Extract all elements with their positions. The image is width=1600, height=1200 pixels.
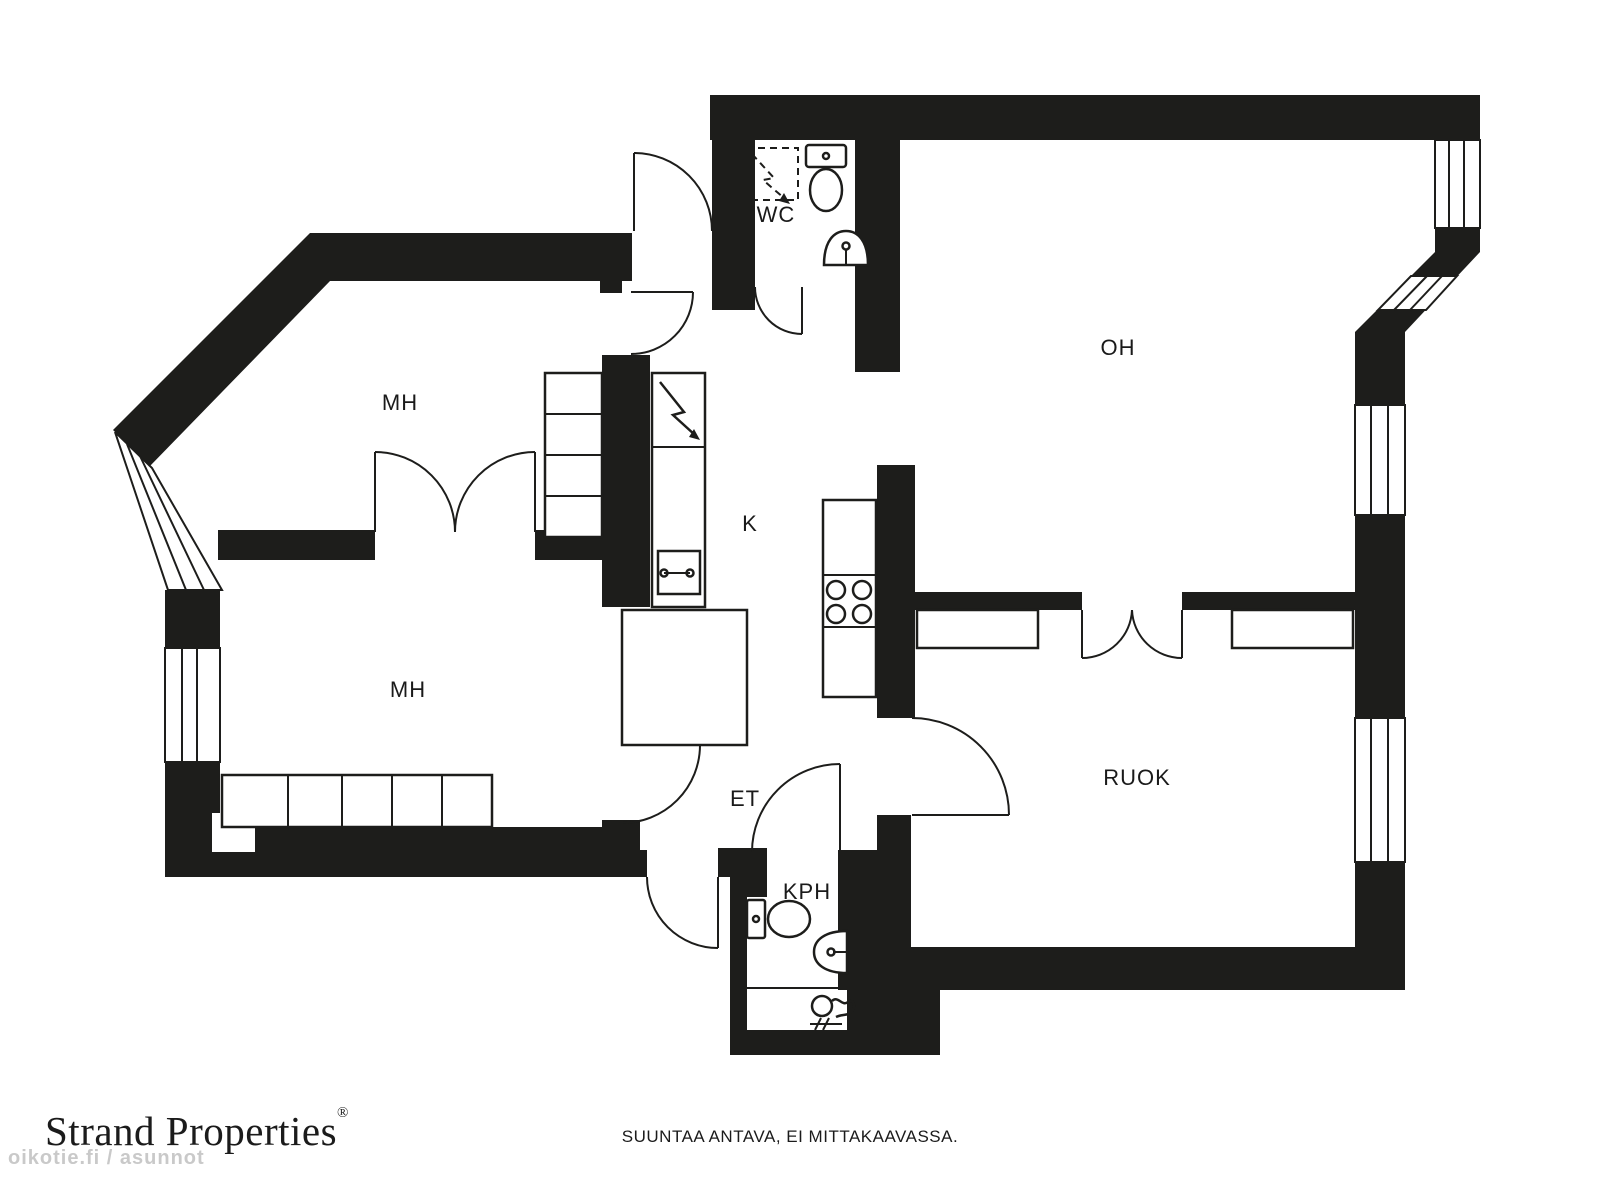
bathroom-toilet-icon: [747, 900, 810, 938]
stove-icon: [823, 500, 876, 697]
dining-room-door-arc: [912, 718, 1009, 815]
window-left: [165, 648, 220, 762]
bedroom-to-hallway-door-arc: [622, 745, 700, 823]
room-label-k: K: [742, 511, 758, 536]
window-right-top: [1435, 140, 1480, 228]
room-label-mh-lower: MH: [390, 677, 426, 702]
room-label-et: ET: [730, 786, 760, 811]
bedroom-double-door-arcs: [375, 452, 535, 532]
room-label-ruok: RUOK: [1103, 765, 1171, 790]
scale-disclaimer: SUUNTAA ANTAVA, EI MITTAKAAVASSA.: [0, 1127, 1580, 1147]
dining-double-door-arcs: [1082, 610, 1182, 658]
bathroom-door-arc: [752, 764, 840, 852]
window-corner-northeast: [1378, 276, 1457, 310]
kitchen-sink-icon: [658, 551, 700, 594]
room-label-kph: KPH: [783, 879, 831, 904]
floor-plan-drawing: MH MH WC OH K ET KPH RUOK: [0, 0, 1600, 1200]
room-labels: MH MH WC OH K ET KPH RUOK: [382, 202, 1171, 904]
room-label-mh-upper: MH: [382, 390, 418, 415]
room-label-wc: WC: [757, 202, 796, 227]
hallway-exit-door-arc: [647, 877, 718, 948]
window-corner-southwest: [115, 432, 222, 590]
wc-toilet-icon: [806, 145, 846, 211]
window-right-lower: [1355, 718, 1405, 862]
site-watermark: oikotie.fi / asunnot: [8, 1147, 205, 1170]
window-right-middle: [1355, 405, 1405, 515]
registered-trademark-symbol: ®: [337, 1105, 349, 1121]
hall-to-bedroom-door-arc: [631, 292, 693, 354]
sideboard-dining-right: [1232, 610, 1353, 648]
sideboard-dining-left: [917, 610, 1038, 648]
room-label-oh: OH: [1101, 335, 1136, 360]
bathroom-sink-icon: [814, 931, 847, 973]
entrance-door-arc: [634, 153, 712, 231]
closet-hallway: [622, 610, 747, 745]
wardrobe-upper-bedroom: [545, 373, 602, 537]
floor-plan-page: MH MH WC OH K ET KPH RUOK Strand Propert…: [0, 0, 1600, 1200]
wc-door-arc: [755, 287, 802, 334]
wardrobe-lower-bedroom: [222, 775, 492, 827]
